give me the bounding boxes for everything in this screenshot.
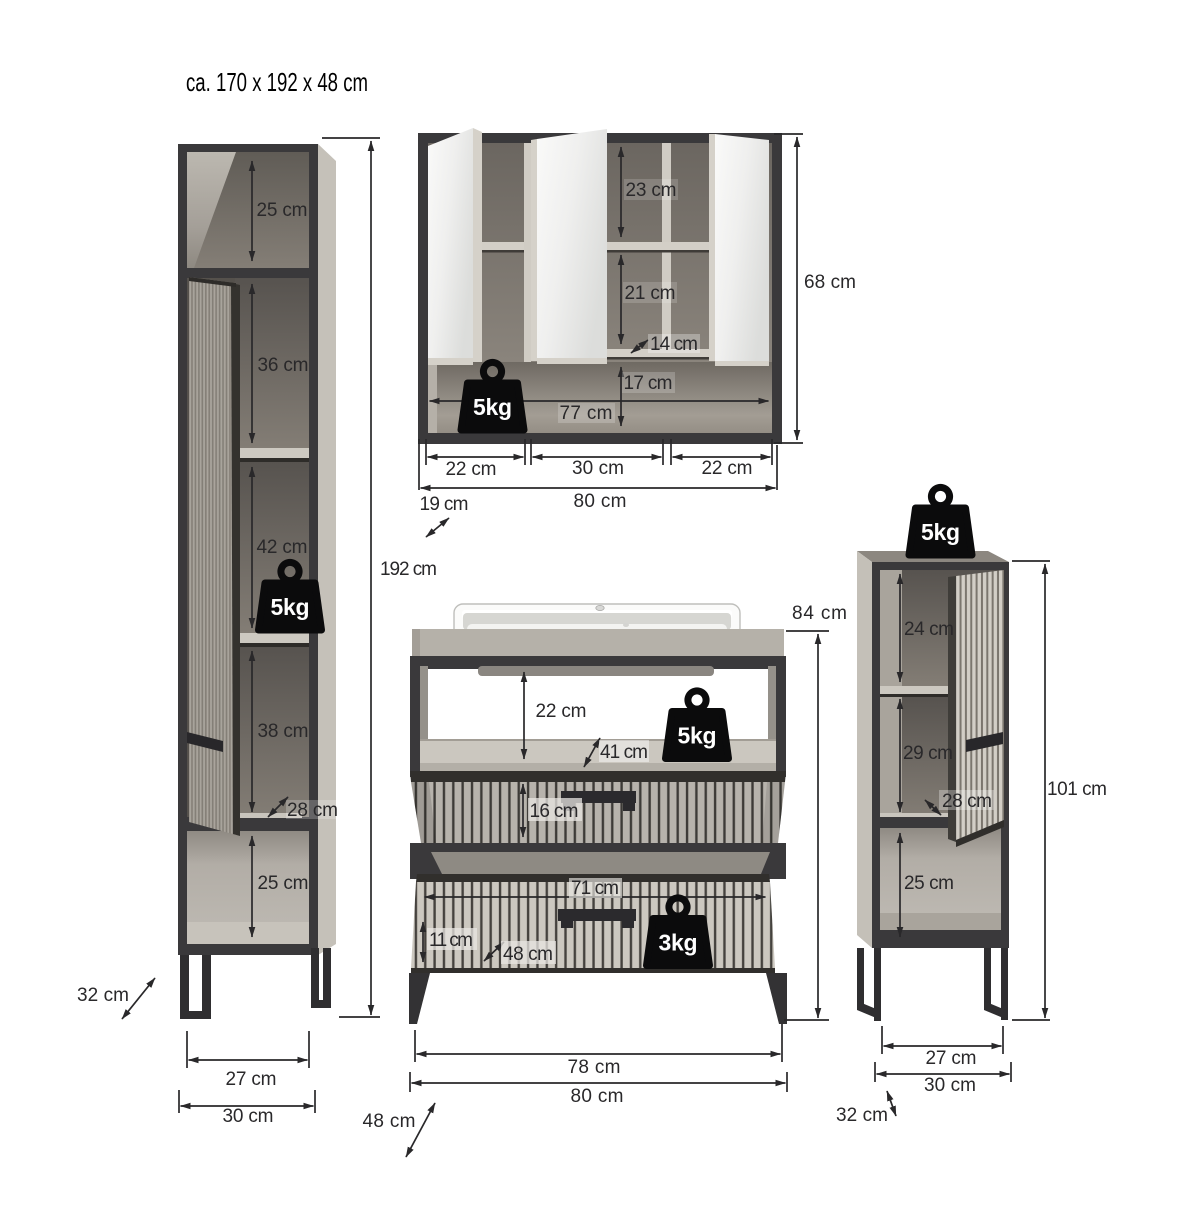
svg-text:30 cm: 30 cm <box>924 1075 976 1096</box>
svg-text:48 cm: 48 cm <box>363 1111 416 1132</box>
svg-text:25 cm: 25 cm <box>904 873 954 894</box>
svg-text:48 cm: 48 cm <box>503 944 553 965</box>
svg-text:41 cm: 41 cm <box>600 742 648 763</box>
svg-text:5kg: 5kg <box>271 594 310 620</box>
svg-text:80 cm: 80 cm <box>571 1086 624 1107</box>
svg-text:30 cm: 30 cm <box>572 458 624 479</box>
svg-text:68 cm: 68 cm <box>804 272 856 293</box>
svg-text:29 cm: 29 cm <box>903 743 953 764</box>
svg-text:ca. 170 x 192 x 48 cm: ca. 170 x 192 x 48 cm <box>186 67 368 97</box>
svg-text:24 cm: 24 cm <box>904 619 954 640</box>
svg-text:28 cm: 28 cm <box>287 800 338 821</box>
svg-text:42 cm: 42 cm <box>257 537 308 558</box>
svg-text:25 cm: 25 cm <box>257 200 308 221</box>
svg-text:25 cm: 25 cm <box>258 873 309 894</box>
svg-text:27 cm: 27 cm <box>226 1069 277 1090</box>
svg-text:21 cm: 21 cm <box>625 283 676 304</box>
svg-text:22 cm: 22 cm <box>702 458 753 479</box>
svg-text:32 cm: 32 cm <box>836 1105 888 1126</box>
svg-text:11 cm: 11 cm <box>429 930 473 951</box>
svg-text:22 cm: 22 cm <box>446 459 497 480</box>
svg-text:101 cm: 101 cm <box>1047 779 1107 800</box>
svg-text:17 cm: 17 cm <box>624 373 673 394</box>
svg-text:5kg: 5kg <box>921 519 960 545</box>
svg-text:192 cm: 192 cm <box>380 559 437 580</box>
svg-text:71 cm: 71 cm <box>571 878 619 899</box>
svg-text:14 cm: 14 cm <box>650 334 698 355</box>
svg-text:78 cm: 78 cm <box>568 1057 621 1078</box>
svg-text:32 cm: 32 cm <box>77 985 129 1006</box>
svg-text:38 cm: 38 cm <box>258 721 309 742</box>
svg-text:19 cm: 19 cm <box>420 494 469 515</box>
svg-text:23 cm: 23 cm <box>626 180 677 201</box>
svg-text:28 cm: 28 cm <box>942 791 992 812</box>
svg-text:3kg: 3kg <box>659 930 698 956</box>
svg-text:36 cm: 36 cm <box>258 355 309 376</box>
svg-text:30 cm: 30 cm <box>223 1106 274 1127</box>
svg-text:16 cm: 16 cm <box>530 801 579 822</box>
svg-text:22 cm: 22 cm <box>536 701 587 722</box>
svg-text:84 cm: 84 cm <box>792 603 847 624</box>
svg-text:5kg: 5kg <box>473 394 512 420</box>
svg-text:80 cm: 80 cm <box>574 491 627 512</box>
svg-text:27 cm: 27 cm <box>926 1048 977 1069</box>
svg-text:77 cm: 77 cm <box>560 403 613 424</box>
svg-text:5kg: 5kg <box>678 723 717 749</box>
